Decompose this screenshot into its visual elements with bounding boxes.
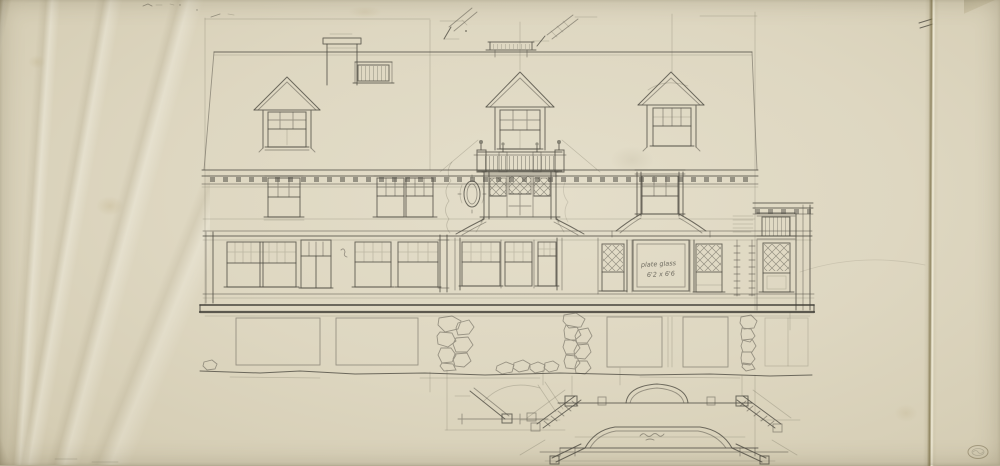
elevation-drawing: plate glass 6'2 x 6'6 <box>0 0 1000 465</box>
window-1f-c <box>352 242 394 287</box>
pavilion-tent-roof <box>612 214 710 237</box>
foundation <box>200 313 812 378</box>
plate-glass-handwritten-note-line2: 6'2 x 6'6 <box>647 270 675 279</box>
water-table-band <box>200 305 814 312</box>
first-floor: plate glass 6'2 x 6'6 <box>203 205 814 310</box>
plate-glass-window: plate glass 6'2 x 6'6 <box>633 240 694 292</box>
terrace-plan-sketches <box>445 368 800 464</box>
window-2f-left <box>264 176 304 220</box>
stamp-icon <box>968 446 988 459</box>
window-1f-d <box>395 242 441 287</box>
stone-pier-2 <box>563 313 592 374</box>
scanned-architectural-drawing: { "colors": { "paper": "#ded7c1", "paper… <box>0 0 1000 465</box>
shed-dormer <box>353 62 394 83</box>
dormer-left-window <box>265 112 309 150</box>
edge-marks <box>55 4 933 462</box>
pavilion-lattice-window-right <box>693 244 725 292</box>
grade-line <box>200 371 812 378</box>
door-with-transom <box>299 240 333 288</box>
dormer-right-window <box>650 108 694 146</box>
right-wing-cornice <box>753 203 813 214</box>
right-wing-cap-panel <box>757 213 795 239</box>
dimension-tick-lines <box>733 216 755 296</box>
lower-terrace-plan <box>520 427 797 464</box>
construction-lines <box>203 12 925 455</box>
foundation-panels <box>236 317 808 367</box>
bay-1f-windows <box>459 238 562 290</box>
pavilion-lattice-window-left <box>598 238 632 294</box>
ground-rubble <box>203 360 559 374</box>
dormer-left <box>254 77 320 152</box>
window-2f-pair <box>373 176 437 217</box>
dormer-right <box>638 72 704 151</box>
window-1f-pair-left <box>224 242 299 287</box>
left-stair-detail <box>445 382 565 430</box>
window-2f-right <box>635 170 685 216</box>
roof-plan-sketch <box>440 8 597 57</box>
stone-pier-1 <box>437 316 474 371</box>
plate-glass-handwritten-note-line1: plate glass <box>640 259 677 269</box>
stone-pier-3 <box>740 315 757 371</box>
porch-pilaster <box>438 235 460 292</box>
